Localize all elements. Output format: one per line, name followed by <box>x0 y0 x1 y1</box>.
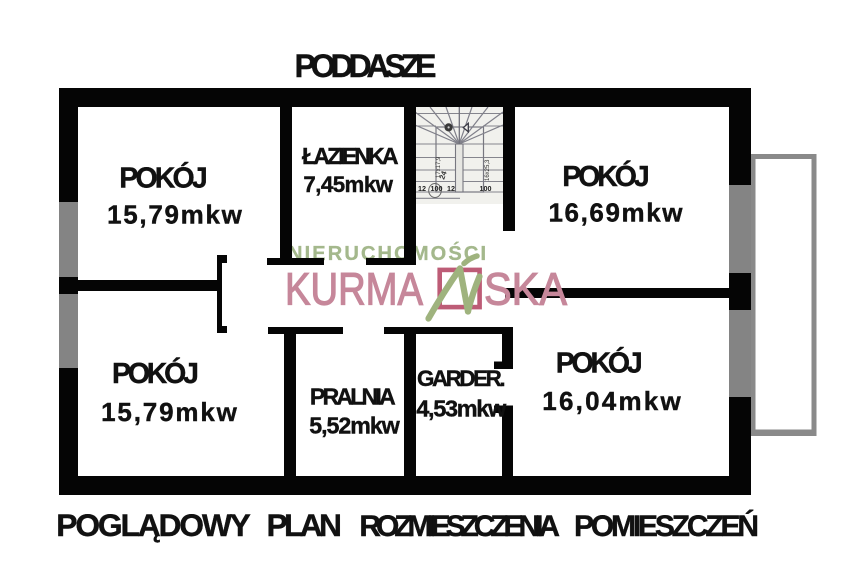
svg-text:7,45mkw: 7,45mkw <box>303 172 393 197</box>
svg-text:16,69mkw: 16,69mkw <box>549 198 684 228</box>
svg-text:100: 100 <box>431 184 443 193</box>
svg-text:POMIESZCZEŃ: POMIESZCZEŃ <box>574 509 759 543</box>
svg-text:KURMA: KURMA <box>285 264 423 315</box>
svg-text:POKÓJ: POKÓJ <box>119 163 207 195</box>
svg-text:5,52mkw: 5,52mkw <box>309 413 400 439</box>
svg-text:SKA: SKA <box>484 264 567 315</box>
svg-text:15,79mkw: 15,79mkw <box>101 397 238 427</box>
svg-text:GARDER.: GARDER. <box>417 366 506 391</box>
svg-text:ROZMIESZCZENIA: ROZMIESZCZENIA <box>359 510 560 543</box>
svg-text:16x25,3: 16x25,3 <box>485 159 491 181</box>
svg-text:POKÓJ: POKÓJ <box>556 348 643 380</box>
svg-text:4,53mkw: 4,53mkw <box>416 396 507 422</box>
svg-text:POGLĄDOWY: POGLĄDOWY <box>56 507 251 543</box>
svg-text:POKÓJ: POKÓJ <box>562 161 649 193</box>
svg-text:POKÓJ: POKÓJ <box>112 358 199 390</box>
svg-text:12: 12 <box>447 184 455 193</box>
svg-text:15,79mkw: 15,79mkw <box>107 199 243 229</box>
svg-text:ŁAZIENKA: ŁAZIENKA <box>302 143 399 169</box>
svg-text:PLAN: PLAN <box>267 507 343 543</box>
svg-text:PRALNIA: PRALNIA <box>310 384 396 410</box>
svg-text:12: 12 <box>418 184 426 193</box>
svg-text:100: 100 <box>480 184 492 193</box>
svg-text:PODDASZE: PODDASZE <box>295 48 437 84</box>
svg-text:16,04mkw: 16,04mkw <box>542 386 681 416</box>
